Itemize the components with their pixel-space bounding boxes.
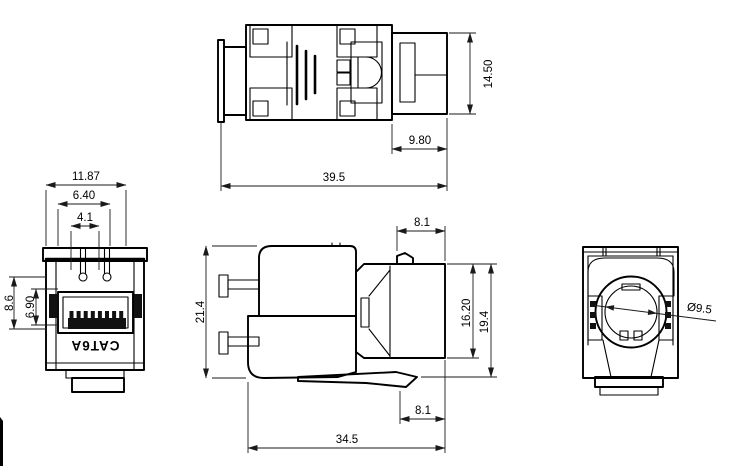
- product-marking-text: CAT6A: [70, 338, 119, 353]
- top-view: 14.50 9.80 39.5: [218, 25, 495, 191]
- dim-text-face-width: 11.87: [72, 171, 100, 183]
- dim-text-nose-depth-top: 8.1: [414, 217, 430, 229]
- upper-body: [259, 246, 356, 316]
- rear-legs: [603, 340, 659, 377]
- bottom-spring-foot: [298, 372, 417, 387]
- dimension-rear-entry-diameter: Ø9.5: [591, 301, 716, 321]
- peg-cap-top: [219, 275, 228, 297]
- side-view: 8.1 21.4 16.20 19.4 8.1 3: [195, 217, 497, 453]
- dimension-top-rear-depth: 9.80: [392, 118, 447, 154]
- nose-funnel-lines: [369, 266, 390, 358]
- latch-d-shape: [358, 57, 381, 88]
- contact-post-right: [103, 273, 111, 281]
- latch-window: [361, 298, 369, 327]
- front-step: [224, 47, 246, 115]
- dim-text-nose-depth-bottom: 8.1: [415, 405, 431, 417]
- latch-bar-right: [134, 294, 142, 318]
- dim-text-outer-height: 8.6: [4, 295, 16, 311]
- cable-ring-outer: [596, 277, 667, 348]
- dimension-side-nose-depth-top: 8.1: [397, 217, 445, 261]
- rear-view: Ø9.5: [583, 247, 716, 395]
- dim-text-block-height: 14.50: [483, 60, 495, 89]
- front-view: CAT6A 11.87 6.40 4.1 8.6: [4, 171, 147, 392]
- peg-stem-top: [228, 280, 259, 289]
- clip-detail: [337, 73, 350, 85]
- dim-text-opening-width: 6.40: [73, 190, 95, 202]
- clip-right-bottom: [337, 88, 377, 120]
- dim-text-flange-height: 19.4: [479, 310, 491, 333]
- contact-comb: [68, 311, 126, 329]
- peg-cap-bottom: [219, 332, 228, 354]
- dim-text-rear-depth: 9.80: [409, 135, 431, 147]
- rear-base-lower: [600, 387, 658, 395]
- lower-body: [248, 316, 356, 378]
- dim-text-overall-length: 39.5: [323, 172, 345, 184]
- top-view-outline: [218, 25, 447, 122]
- bottom-tab-lower: [72, 378, 124, 392]
- clip-right-top: [337, 25, 377, 57]
- top-latch-hook: [397, 253, 413, 264]
- clip-left-top: [250, 25, 292, 57]
- dim-text-overall-height: 21.4: [195, 300, 207, 323]
- technical-drawing: 14.50 9.80 39.5: [0, 0, 732, 466]
- rear-view-outline: [583, 247, 678, 395]
- contact-post-left: [79, 273, 87, 281]
- clip-detail: [337, 60, 350, 72]
- drawing-canvas: 14.50 9.80 39.5: [0, 0, 732, 466]
- bottom-tab-upper: [66, 370, 124, 378]
- peg-stem-bottom: [228, 337, 259, 346]
- front-view-outline: CAT6A: [43, 248, 147, 392]
- dim-text-entry-diameter: Ø9.5: [686, 301, 712, 316]
- page-edge-mark: [0, 417, 3, 466]
- rear-top-band: [583, 252, 678, 256]
- clip-detail: [253, 29, 268, 44]
- side-view-outline: [219, 243, 445, 387]
- rear-block-detail: [400, 43, 415, 102]
- dim-text-notch-spacing: 4.1: [77, 212, 93, 224]
- latch-bar-left: [49, 294, 57, 318]
- rear-body: [583, 247, 678, 378]
- dim-text-overall-depth: 34.5: [336, 434, 358, 446]
- dimension-side-flange-height: 19.4: [421, 264, 497, 377]
- clip-left-bottom: [250, 88, 292, 120]
- dim-text-face-height: 16.20: [461, 299, 473, 328]
- dim-text-opening-height: 6.90: [25, 296, 37, 318]
- dimension-side-overall-depth: 34.5: [248, 382, 445, 453]
- clip-detail: [253, 101, 268, 116]
- leader-arrow-right: [648, 309, 658, 316]
- dimension-top-block-height: 14.50: [449, 33, 495, 114]
- dimension-top-overall-length: 39.5: [221, 122, 447, 191]
